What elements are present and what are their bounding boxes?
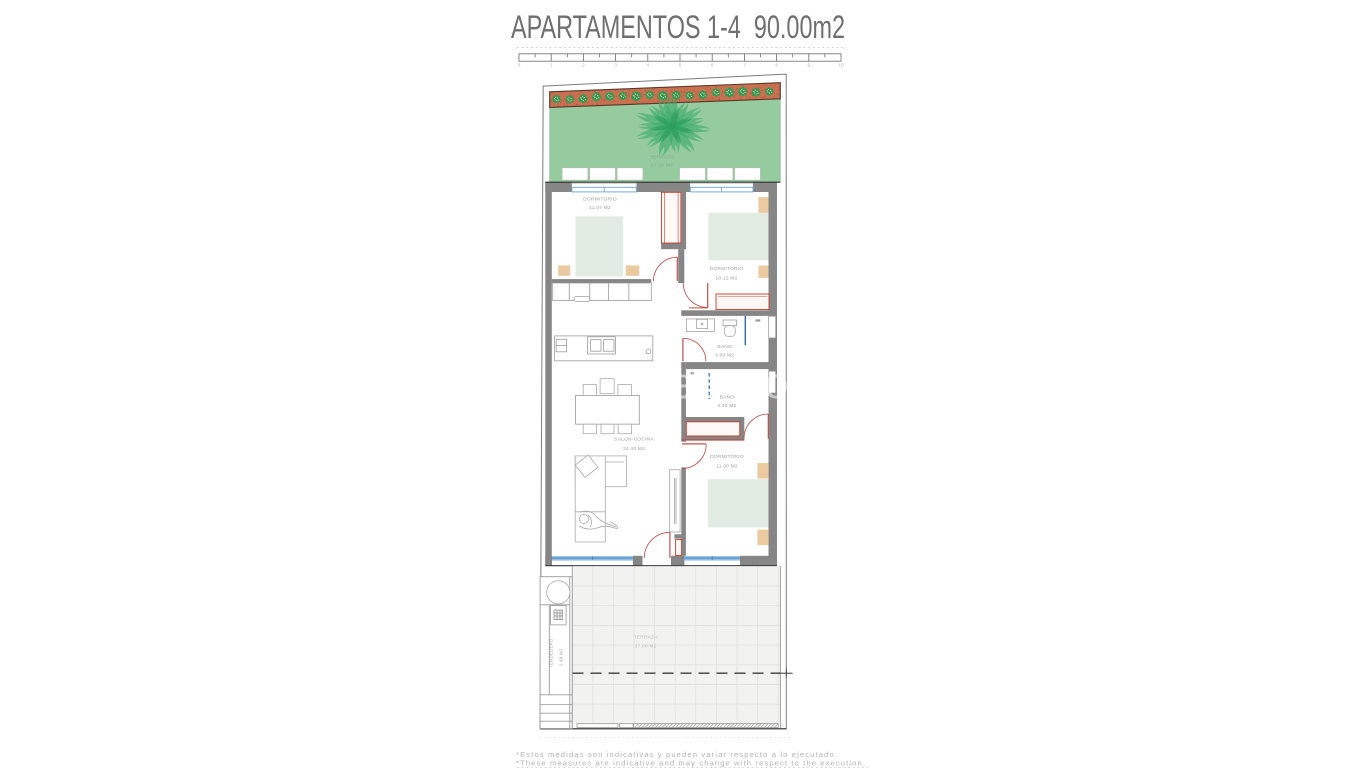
svg-text:TENDEDERO: TENDEDERO	[549, 638, 554, 668]
svg-text:2.48 M2: 2.48 M2	[559, 648, 564, 666]
svg-text:2: 2	[582, 63, 585, 68]
svg-text:0: 0	[518, 63, 521, 68]
svg-text:7: 7	[743, 63, 746, 68]
svg-text:4: 4	[647, 63, 650, 68]
svg-text:9: 9	[808, 63, 811, 68]
svg-text:4.30 M2: 4.30 M2	[717, 403, 736, 409]
svg-text:e: e	[670, 359, 694, 408]
svg-text:11.07 M2: 11.07 M2	[589, 205, 611, 211]
svg-text:o: o	[764, 359, 788, 408]
svg-text:BAÑO: BAÑO	[720, 394, 735, 401]
svg-text:BAÑO: BAÑO	[717, 343, 732, 350]
svg-text:*These measures are indicative: *These measures are indicative and may c…	[516, 759, 865, 768]
svg-text:37.00 M2: 37.00 M2	[635, 644, 657, 649]
svg-text:8: 8	[775, 63, 778, 68]
svg-text:DORMITORIO: DORMITORIO	[710, 454, 744, 460]
svg-text:6: 6	[711, 63, 714, 68]
svg-text:APARTAMENTOS 1-4 90.00m2: APARTAMENTOS 1-4 90.00m2	[511, 9, 845, 45]
svg-text:27.36 M2: 27.36 M2	[651, 163, 673, 169]
svg-text:3: 3	[614, 63, 617, 68]
svg-text:TERRAZA: TERRAZA	[634, 635, 659, 640]
svg-text:SALON-COCINA: SALON-COCINA	[614, 437, 654, 443]
svg-text:10: 10	[838, 63, 844, 68]
svg-text:4.00 M2: 4.00 M2	[715, 353, 734, 359]
svg-text:TERRAZA: TERRAZA	[650, 155, 675, 161]
svg-text:11.00 M2: 11.00 M2	[716, 464, 738, 470]
svg-text:DORMITORIO: DORMITORIO	[583, 197, 617, 203]
svg-text:10.12 M2: 10.12 M2	[716, 276, 738, 282]
svg-text:5: 5	[679, 63, 682, 68]
svg-text:1: 1	[550, 63, 553, 68]
svg-text:DORMITORIO: DORMITORIO	[710, 266, 744, 272]
svg-text:34.40 M2: 34.40 M2	[623, 446, 645, 452]
